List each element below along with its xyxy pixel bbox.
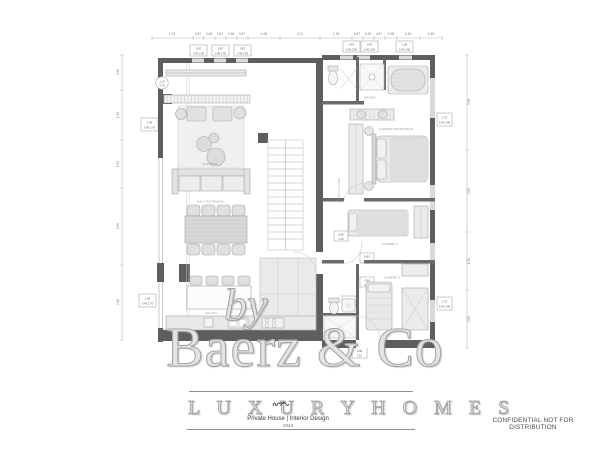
dining-chair — [202, 244, 215, 255]
dim-label: 0.87 — [376, 32, 382, 36]
bar-stool — [190, 276, 202, 285]
window-tag-label: 1.08 — [402, 43, 408, 47]
divider-line-bottom — [187, 429, 415, 430]
dim-label: 3.90 — [116, 69, 120, 75]
armchair — [187, 107, 206, 121]
pillow — [368, 284, 390, 292]
sofa-arm — [172, 169, 178, 194]
toilet2 — [330, 302, 339, 314]
dining-chair — [217, 205, 230, 216]
title-block: Private House | Interior Design 2024 — [208, 416, 368, 429]
bathroom-zone — [328, 64, 428, 94]
dim-labels-right: 3.58 2.50 1.50 2.05 — [467, 99, 471, 322]
window-tag-label: 0.45 2.90 — [193, 51, 205, 55]
dim-label: 2.05 — [467, 316, 471, 322]
vanity-stool — [379, 111, 388, 119]
window-tag-label: 1.75 — [442, 300, 448, 304]
sofa-cushion — [223, 176, 244, 191]
room-label-dining: SALA DA PRANZO — [197, 200, 225, 204]
window-tag-label: 0.45 2.90 — [237, 51, 249, 55]
dim-label: 2.50 — [467, 188, 471, 194]
vanity-stool — [357, 111, 366, 119]
dining-chair — [232, 205, 245, 216]
dim-labels-top: 1.10 0.87 0.48 0.87 0.48 0.87 1.68 2.12 … — [169, 32, 434, 36]
headboard — [372, 134, 376, 184]
window-tag-label: 0.87 — [196, 47, 202, 51]
dim-label: 0.87 — [195, 32, 201, 36]
dim-labels-left: 3.90 1.20 1.55 2.50 2.40 — [116, 69, 120, 305]
pillow — [377, 139, 386, 158]
door-tag-label: 2.10 — [338, 237, 344, 241]
dining-chair — [217, 244, 230, 255]
dim-label: 0.45 — [428, 32, 434, 36]
console-tag-line2: 2.75 — [159, 84, 165, 88]
window-tag-label: 1.75 — [442, 116, 448, 120]
bar-stool — [222, 276, 234, 285]
dim-label: 1.68 — [261, 32, 267, 36]
window-tag-label: 1.40 — [147, 121, 153, 125]
side-table — [234, 107, 246, 119]
coffee-table — [209, 133, 219, 143]
floorplan-drawing: 1.10 0.87 0.48 0.87 0.48 0.87 1.68 2.12 … — [0, 0, 600, 450]
dim-label: 1.55 — [116, 161, 120, 167]
dim-label: 0.48 — [228, 32, 234, 36]
window-tag-label: 0.45 2.90 — [364, 47, 376, 51]
kitchen-island — [187, 286, 251, 309]
window-tag-label: 0.45 2.90 — [439, 121, 451, 125]
console-tag-line1: 1.10 — [159, 79, 165, 83]
toilet — [329, 71, 338, 85]
dim-label: 1.08 — [388, 32, 394, 36]
window-tag-label: 0.45 2.90 — [215, 51, 227, 55]
dining-chair — [187, 205, 200, 216]
dining-zone — [185, 205, 247, 255]
door-swing-lines — [340, 68, 357, 89]
pillow — [377, 160, 386, 179]
dim-label: 0.87 — [354, 32, 360, 36]
dim-label: 2.36 — [405, 32, 411, 36]
window-tag-label: 0.87 — [218, 47, 224, 51]
window-tag-label: 0.87 — [367, 43, 373, 47]
dim-label: 1.75 — [333, 32, 339, 36]
dim-label: 0.87 — [239, 32, 245, 36]
bed2-blanket — [358, 211, 408, 235]
shower-drain — [369, 74, 375, 80]
bar-stool — [238, 276, 250, 285]
window-tag-label: 0.45 2.90 — [439, 305, 451, 309]
door-tag-label: 0.80 — [338, 232, 344, 236]
pillow — [349, 213, 357, 231]
sofa-cushion — [179, 176, 200, 191]
bathtub — [391, 69, 425, 91]
bed-blanket — [390, 137, 428, 181]
sofa-back — [172, 169, 250, 176]
dining-chair — [232, 244, 245, 255]
door-tag-label: 0.80 — [357, 349, 363, 353]
divider-line-top — [189, 391, 413, 392]
project-title: Private House | Interior Design — [208, 416, 368, 423]
window-tag-label: 0.87 — [240, 47, 246, 51]
dim-label: 0.87 — [217, 32, 223, 36]
room-label-bed2: CAMERA 2 — [382, 242, 398, 246]
desk — [402, 264, 428, 276]
counter-appliance — [204, 318, 213, 327]
room-label-bed3: CAMERA 3 — [384, 276, 400, 280]
dim-label: 0.42 — [365, 32, 371, 36]
dim-label: 1.20 — [116, 112, 120, 118]
dim-label: 1.10 — [169, 32, 175, 36]
bedroom2-zone — [348, 206, 428, 238]
dim-label: 2.50 — [116, 223, 120, 229]
window-tag-label: 0.45 2.90 — [346, 47, 358, 51]
window-tag-label: 0.87 — [349, 43, 355, 47]
window-tag-label: 0.45 2.90 — [399, 47, 411, 51]
bar-stool — [206, 276, 218, 285]
armchair — [213, 107, 232, 121]
toilet-tank — [328, 66, 338, 71]
room-label-master: CAMERA PADRONALE — [379, 127, 413, 131]
dim-label: 3.58 — [467, 99, 471, 105]
staircase — [268, 140, 303, 250]
door-tag-label: 0.80 — [364, 254, 370, 258]
sofa-arm — [244, 169, 250, 194]
living-zone — [156, 70, 250, 194]
room-label-living: SALOTTO — [203, 162, 218, 166]
sofa-cushion — [201, 176, 222, 191]
studio-logo — [272, 400, 290, 408]
dim-label: 1.50 — [467, 258, 471, 264]
room-label-kitchen: CUCINA — [205, 311, 217, 315]
confidential-note: CONFIDENTIAL NOT FOR DISTRIBUTION — [468, 417, 598, 431]
master-bedroom-zone — [349, 109, 428, 194]
dim-label: 2.12 — [297, 32, 303, 36]
window-tag-label: 1.40 — [145, 297, 151, 301]
dim-label: 2.40 — [116, 299, 120, 305]
dining-chair — [202, 205, 215, 216]
side-table — [176, 109, 187, 120]
window-tag-label: 0.45 2.70 — [142, 302, 154, 306]
dining-chair — [187, 244, 200, 255]
door-tag-label: 2.10 — [357, 353, 363, 357]
room-label-closet: WALK IN CLOSET — [337, 177, 341, 202]
door-opening — [356, 340, 380, 348]
floorplan-sheet: 1.10 0.87 0.48 0.87 0.48 0.87 1.68 2.12 … — [0, 0, 600, 450]
window-tag-label: 0.45 2.70 — [144, 126, 156, 130]
dim-label: 0.48 — [206, 32, 212, 36]
room-label-bathroom: BAGNO — [364, 96, 376, 100]
